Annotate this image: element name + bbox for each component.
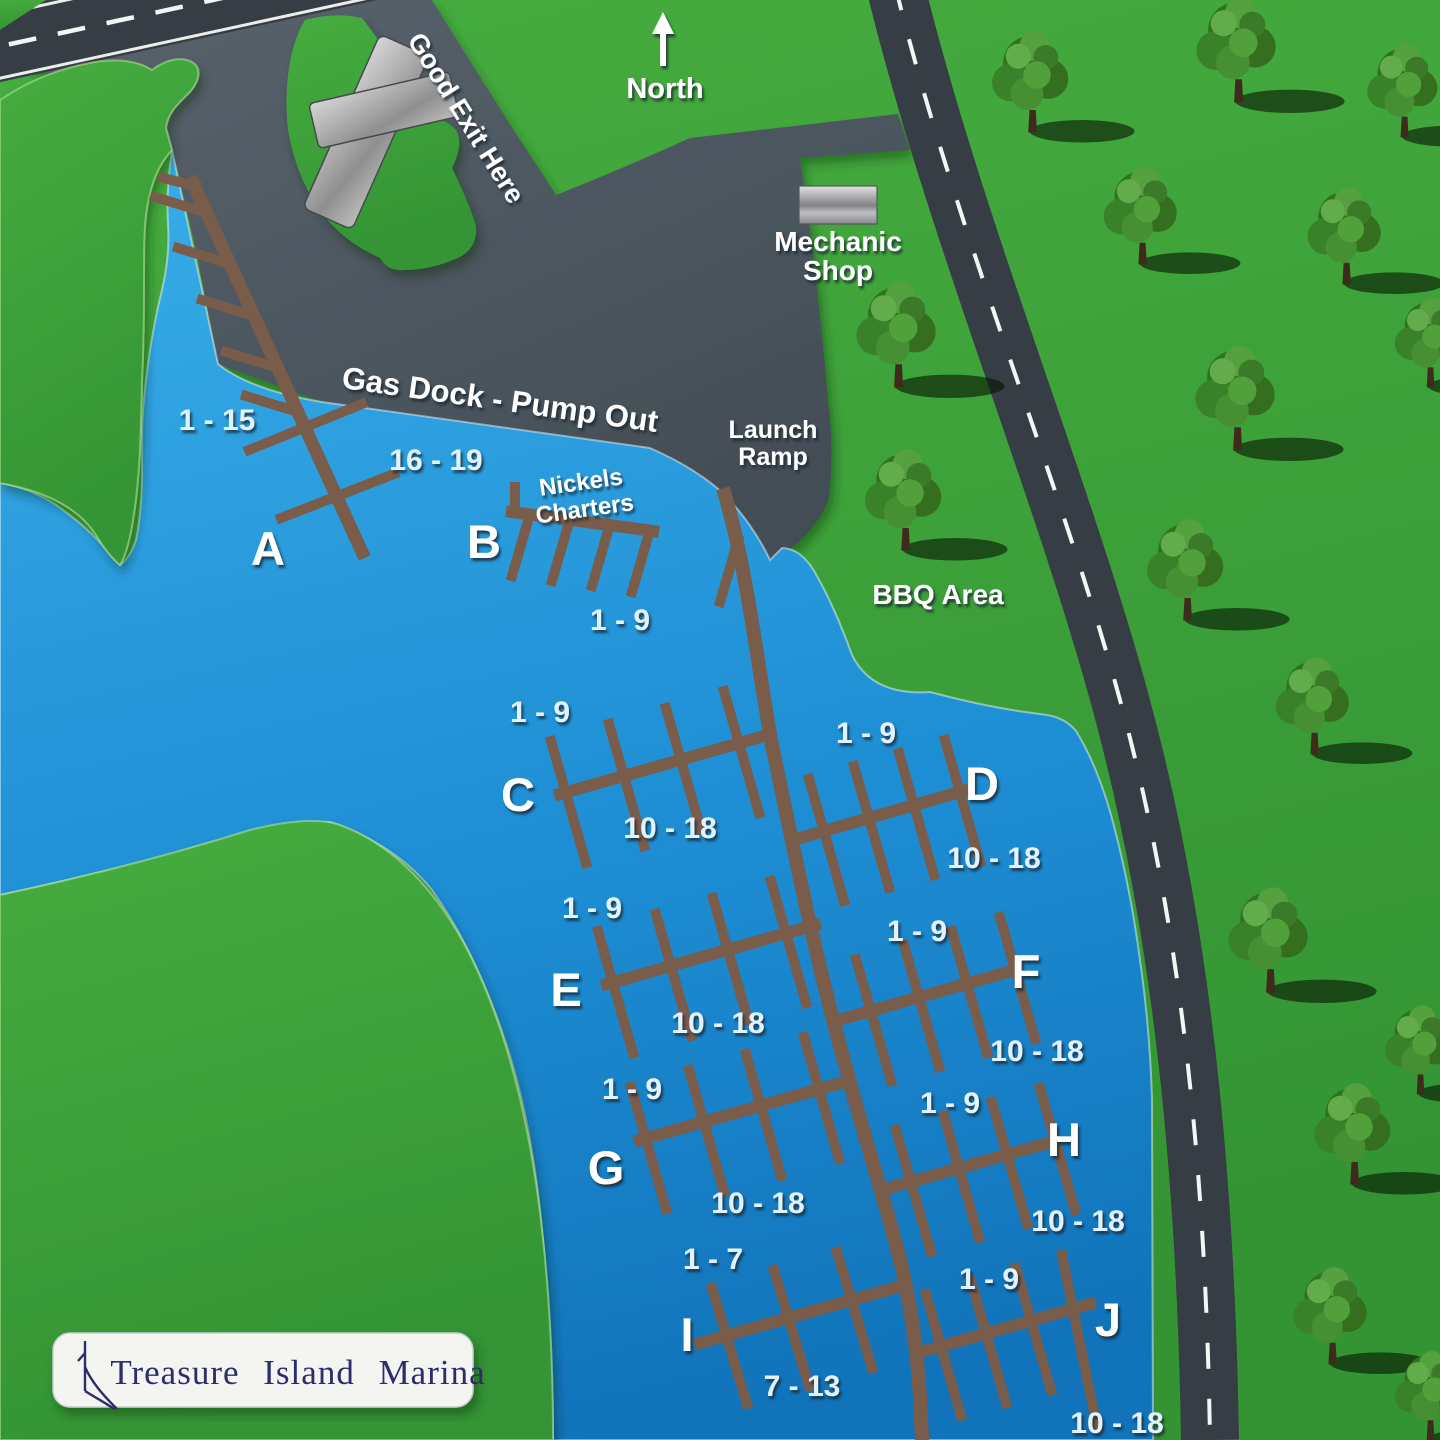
dock-f-label: F bbox=[1012, 945, 1041, 998]
dock-c-label: C bbox=[501, 768, 535, 821]
dock-g-label: G bbox=[588, 1141, 625, 1194]
dock-d-slips-1: 1 - 9 bbox=[836, 717, 896, 750]
dock-d-slips-2: 10 - 18 bbox=[947, 842, 1040, 875]
mechanic-shop-label-line2: Shop bbox=[803, 255, 873, 286]
dock-g-slips-1: 1 - 9 bbox=[602, 1073, 662, 1106]
dock-d-label: D bbox=[965, 757, 999, 810]
dock-j-slips-1: 1 - 9 bbox=[959, 1263, 1019, 1296]
dock-b-label: B bbox=[467, 515, 501, 568]
dock-g-slips-2: 10 - 18 bbox=[711, 1187, 804, 1220]
dock-j-label: J bbox=[1095, 1293, 1121, 1346]
dock-f-slips-2: 10 - 18 bbox=[990, 1035, 1083, 1068]
dock-c-slips-1: 1 - 9 bbox=[510, 696, 570, 729]
dock-c-slips-2: 10 - 18 bbox=[623, 812, 716, 845]
logo-title: Treasure Island Marina bbox=[110, 1353, 485, 1392]
dock-i-label: I bbox=[680, 1308, 693, 1361]
logo: Treasure Island Marina bbox=[53, 1333, 486, 1409]
bbq-area-label: BBQ Area bbox=[872, 579, 1004, 610]
dock-a-slips-2: 16 - 19 bbox=[389, 444, 482, 477]
dock-a-label: A bbox=[251, 522, 285, 575]
dock-h-slips-2: 10 - 18 bbox=[1031, 1205, 1124, 1238]
launch-ramp-label-line1: Launch bbox=[729, 416, 818, 444]
dock-e-label: E bbox=[550, 963, 581, 1016]
dock-e-slips-1: 1 - 9 bbox=[562, 892, 622, 925]
dock-e-slips-2: 10 - 18 bbox=[671, 1007, 764, 1040]
north-label: North bbox=[626, 73, 703, 105]
marina-map: North Good Exit Here Gas Dock - Pump Out… bbox=[0, 0, 1440, 1440]
dock-i-slips-2: 7 - 13 bbox=[764, 1370, 841, 1403]
dock-j-slips-2: 10 - 18 bbox=[1070, 1407, 1163, 1440]
dock-h-slips-1: 1 - 9 bbox=[920, 1087, 980, 1120]
launch-ramp-label-line2: Ramp bbox=[738, 443, 807, 471]
mechanic-shop-building bbox=[799, 186, 877, 224]
dock-i-slips-1: 1 - 7 bbox=[683, 1243, 743, 1276]
marina-map-svg: North Good Exit Here Gas Dock - Pump Out… bbox=[0, 0, 1440, 1440]
dock-h-label: H bbox=[1047, 1113, 1081, 1166]
dock-b-slips-1: 1 - 9 bbox=[590, 604, 650, 637]
mechanic-shop-label-line1: Mechanic bbox=[774, 226, 902, 257]
dock-a-slips-1: 1 - 15 bbox=[179, 404, 256, 437]
dock-f-slips-1: 1 - 9 bbox=[887, 915, 947, 948]
